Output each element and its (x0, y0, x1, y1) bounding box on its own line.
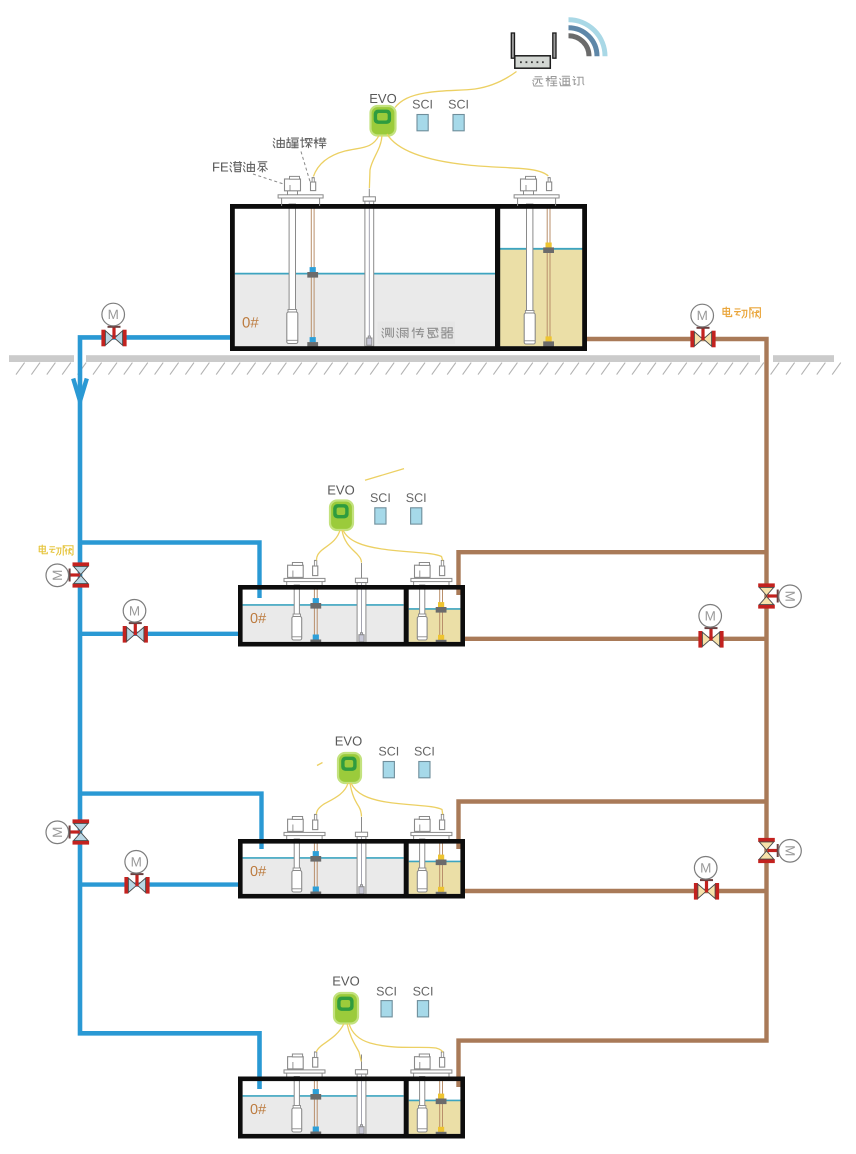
svg-text:EVO: EVO (332, 974, 359, 989)
svg-text:SCI: SCI (414, 745, 435, 759)
svg-text:M: M (129, 603, 140, 618)
svg-text:M: M (705, 608, 716, 623)
svg-text:M: M (782, 845, 797, 856)
svg-text:SCI: SCI (376, 985, 397, 999)
svg-text:EVO: EVO (327, 483, 354, 498)
svg-text:SCI: SCI (448, 98, 469, 112)
svg-text:SCI: SCI (412, 98, 433, 112)
svg-text:M: M (108, 307, 119, 322)
svg-text:M: M (700, 860, 711, 875)
svg-text:SCI: SCI (413, 985, 434, 999)
svg-text:EVO: EVO (335, 734, 362, 749)
svg-text:M: M (131, 854, 142, 869)
svg-text:M: M (697, 308, 708, 323)
svg-text:SCI: SCI (406, 491, 427, 505)
svg-text:M: M (50, 570, 65, 581)
svg-text:0#: 0# (250, 611, 266, 627)
svg-text:0#: 0# (242, 315, 259, 332)
svg-text:M: M (782, 591, 797, 602)
svg-text:SCI: SCI (378, 745, 399, 759)
svg-text:0#: 0# (250, 864, 266, 880)
svg-text:M: M (50, 827, 65, 838)
svg-text:0#: 0# (250, 1102, 266, 1118)
svg-text:FE: FE (212, 160, 229, 175)
svg-text:SCI: SCI (370, 491, 391, 505)
svg-text:EVO: EVO (369, 91, 396, 106)
